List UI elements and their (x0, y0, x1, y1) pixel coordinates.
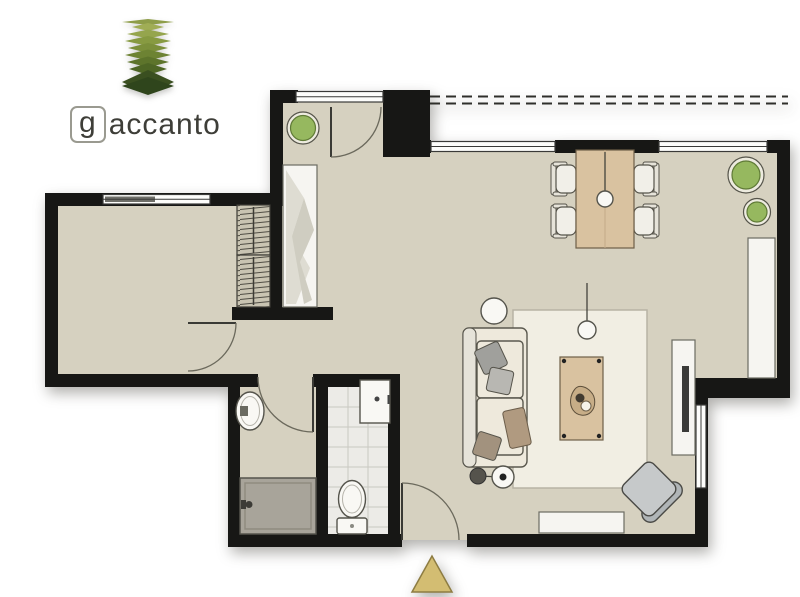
sideboard (748, 238, 775, 378)
living-window-right (659, 142, 767, 152)
toilet (337, 481, 367, 535)
sofa (463, 328, 532, 467)
plant-pot (744, 199, 771, 226)
plant-pot (287, 112, 319, 144)
entrance-marker-triangle-icon (412, 556, 452, 592)
wall-segment (767, 140, 790, 153)
wall-segment (316, 387, 328, 534)
dining-chair (634, 204, 659, 238)
wall-segment (695, 378, 790, 398)
shower-handle (246, 501, 253, 508)
floor-plan (0, 0, 800, 597)
low-bench (539, 512, 624, 533)
wall-segment (400, 140, 431, 153)
sink (236, 392, 264, 430)
living-window-left (431, 142, 555, 152)
tv-icon (682, 366, 689, 432)
wall-cabinet (360, 380, 390, 423)
side-table (481, 298, 507, 324)
faucet-icon (240, 406, 248, 416)
wall-segment (777, 140, 790, 398)
hall-wardrobe (283, 165, 317, 307)
apartment-floor (50, 95, 785, 540)
dining-chair (551, 162, 576, 196)
wall-segment (467, 534, 708, 547)
bedroom (237, 205, 270, 307)
dining-chair (634, 162, 659, 196)
coffee-table (560, 357, 603, 440)
entry-window (296, 92, 383, 103)
pillow (486, 367, 514, 395)
floor-plan-page: g accanto (0, 0, 800, 597)
plant-pot (728, 157, 764, 193)
wall-segment (45, 374, 258, 387)
side-window (696, 405, 706, 488)
wall-segment (228, 534, 402, 547)
bedroom-window (103, 195, 210, 205)
wall-segment (232, 307, 333, 320)
dining-chair (551, 204, 576, 238)
wall-segment (45, 193, 58, 387)
closet-hatched (237, 205, 270, 307)
shower (240, 478, 316, 534)
tv-board (672, 340, 695, 455)
wall-segment (270, 90, 283, 206)
balcony-outline (430, 97, 788, 104)
